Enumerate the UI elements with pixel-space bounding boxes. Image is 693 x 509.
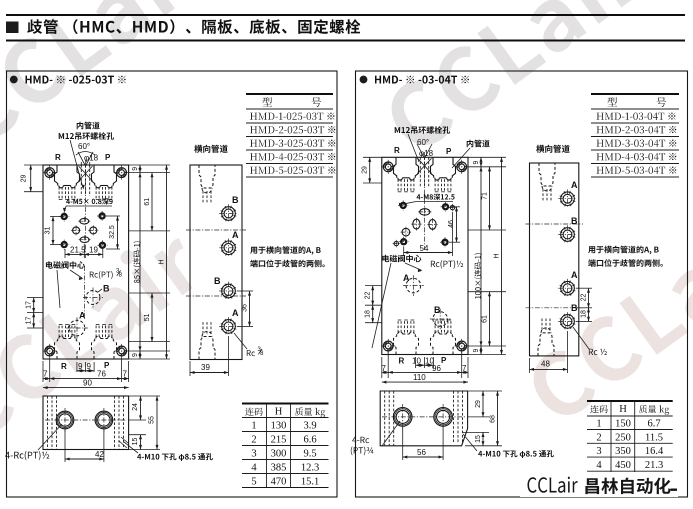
- svg-text:P: P: [105, 153, 111, 162]
- svg-text:300: 300: [271, 448, 287, 459]
- svg-text:9: 9: [132, 167, 139, 171]
- svg-text:3: 3: [596, 446, 601, 457]
- svg-text:4: 4: [251, 462, 257, 473]
- svg-text:R: R: [61, 362, 67, 371]
- svg-text:7: 7: [43, 370, 48, 379]
- svg-text:16.4: 16.4: [645, 446, 664, 457]
- svg-text:76: 76: [97, 370, 106, 379]
- svg-text:450: 450: [615, 460, 631, 471]
- svg-text:36: 36: [242, 304, 249, 312]
- svg-text:A: A: [232, 230, 239, 240]
- svg-text:B: B: [434, 305, 441, 315]
- svg-text:60°: 60°: [78, 142, 90, 151]
- svg-text:9: 9: [473, 348, 480, 352]
- svg-text:55: 55: [149, 416, 156, 424]
- svg-text:31: 31: [45, 227, 52, 235]
- svg-text:215: 215: [271, 434, 287, 445]
- svg-text:150: 150: [615, 419, 631, 430]
- svg-text:96: 96: [432, 364, 441, 373]
- svg-text:19: 19: [89, 246, 98, 255]
- svg-text:350: 350: [615, 446, 631, 457]
- svg-text:H: H: [275, 407, 283, 418]
- svg-text:3.9: 3.9: [303, 420, 316, 431]
- svg-text:5: 5: [251, 476, 256, 487]
- svg-text:1: 1: [596, 419, 601, 430]
- svg-text:B: B: [103, 284, 110, 294]
- svg-text:B: B: [232, 195, 239, 205]
- svg-text:1: 1: [251, 420, 256, 431]
- svg-text:A: A: [571, 180, 578, 190]
- svg-text:385: 385: [271, 462, 287, 473]
- svg-text:3: 3: [251, 448, 256, 459]
- svg-text:P: P: [441, 356, 447, 365]
- svg-text:56: 56: [417, 448, 426, 457]
- svg-text:R: R: [399, 357, 405, 366]
- svg-text:29: 29: [475, 400, 482, 408]
- svg-text:15: 15: [475, 435, 482, 443]
- svg-text:A: A: [571, 270, 578, 280]
- svg-text:7: 7: [123, 370, 128, 379]
- svg-text:90: 90: [83, 379, 92, 388]
- svg-text:9.5: 9.5: [303, 448, 316, 459]
- svg-text:32.5: 32.5: [109, 225, 116, 239]
- svg-text:51: 51: [144, 313, 151, 321]
- svg-text:130: 130: [271, 420, 287, 431]
- svg-text:R: R: [55, 153, 61, 162]
- svg-text:250: 250: [615, 432, 631, 443]
- svg-text:15.1: 15.1: [301, 476, 319, 487]
- svg-text:22: 22: [581, 294, 588, 302]
- svg-text:48: 48: [541, 360, 550, 369]
- svg-text:H: H: [494, 253, 501, 258]
- svg-text:60°: 60°: [417, 138, 429, 147]
- svg-text:2: 2: [251, 434, 256, 445]
- svg-text:7: 7: [382, 364, 387, 373]
- svg-text:61: 61: [482, 315, 489, 323]
- svg-text:R: R: [394, 146, 400, 155]
- svg-text:P: P: [446, 147, 452, 156]
- svg-text:470: 470: [271, 476, 287, 487]
- svg-text:A: A: [232, 308, 239, 318]
- svg-text:φ18: φ18: [84, 154, 99, 163]
- svg-text:42: 42: [95, 450, 104, 459]
- svg-text:54: 54: [420, 244, 429, 253]
- svg-text:6.7: 6.7: [647, 419, 660, 430]
- svg-text:110: 110: [413, 373, 426, 382]
- svg-text:21.5: 21.5: [70, 246, 86, 255]
- svg-text:9: 9: [132, 353, 139, 357]
- svg-text:61: 61: [144, 198, 151, 206]
- svg-text:9: 9: [87, 362, 92, 371]
- svg-text:15: 15: [132, 438, 139, 446]
- svg-text:68: 68: [490, 415, 497, 423]
- svg-text:8: 8: [260, 351, 264, 357]
- svg-text:46: 46: [448, 220, 455, 228]
- svg-text:18: 18: [581, 310, 588, 318]
- svg-text:29: 29: [362, 166, 369, 174]
- svg-text:6.6: 6.6: [303, 434, 316, 445]
- svg-text:9: 9: [473, 160, 480, 164]
- svg-text:A: A: [79, 311, 86, 321]
- svg-text:2: 2: [596, 432, 601, 443]
- svg-text:17: 17: [26, 301, 33, 309]
- svg-text:71: 71: [482, 192, 489, 200]
- svg-text:22: 22: [365, 292, 372, 300]
- svg-text:17: 17: [26, 317, 33, 325]
- svg-text:39: 39: [201, 363, 210, 372]
- svg-text:4: 4: [596, 460, 602, 471]
- svg-text:φ18: φ18: [419, 149, 434, 158]
- svg-text:H: H: [159, 259, 166, 264]
- svg-text:A: A: [403, 273, 410, 283]
- svg-text:11.5: 11.5: [645, 432, 663, 443]
- svg-text:24: 24: [132, 403, 139, 411]
- svg-text:B: B: [571, 216, 578, 226]
- svg-text:B: B: [214, 276, 221, 286]
- svg-text:21.3: 21.3: [645, 460, 663, 471]
- svg-text:7: 7: [462, 364, 467, 373]
- svg-text:12.3: 12.3: [301, 462, 319, 473]
- svg-text:18: 18: [365, 310, 372, 318]
- svg-text:29: 29: [21, 175, 28, 183]
- svg-text:8: 8: [119, 272, 123, 278]
- svg-text:H: H: [619, 404, 627, 415]
